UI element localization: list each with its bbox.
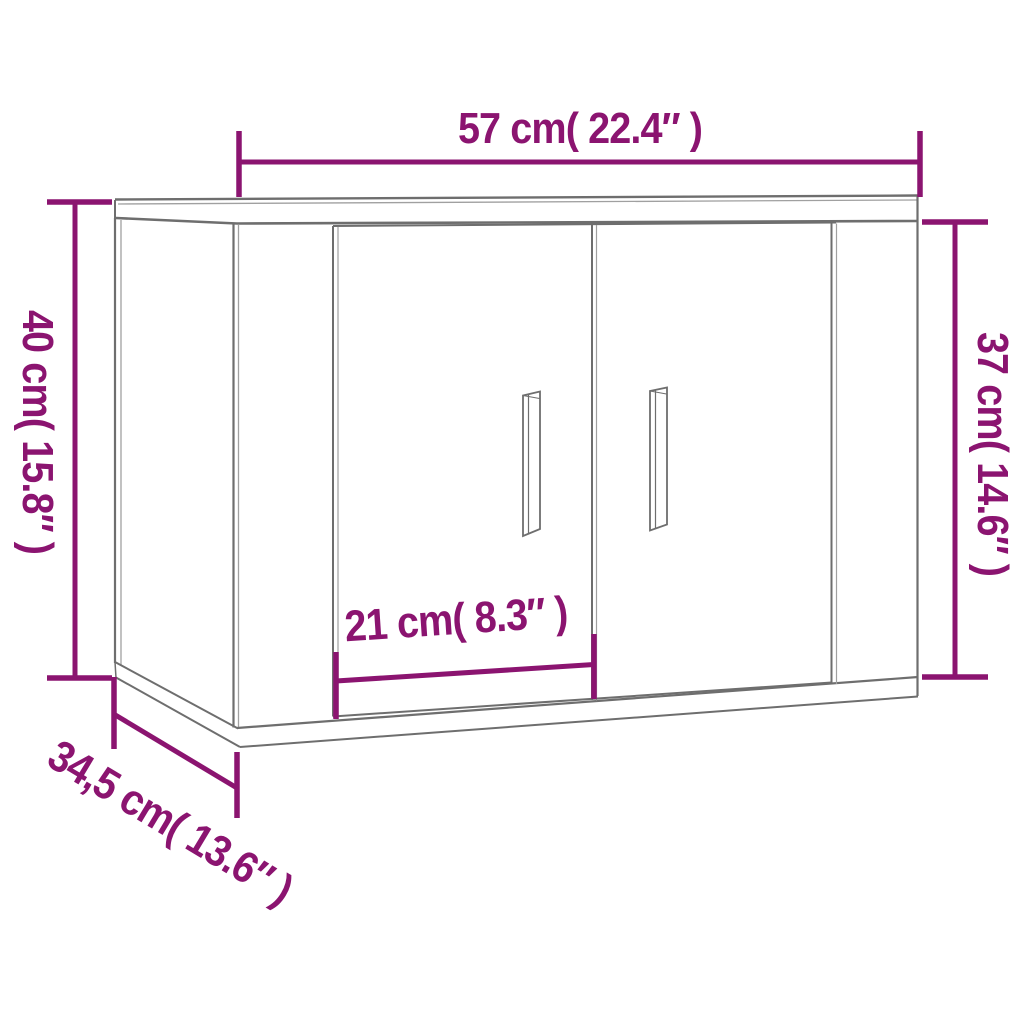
width-dimension-label: 57 cm( 22.4″ ) — [346, 105, 814, 153]
cabinet-left-side — [115, 218, 240, 747]
height-right-dimension-label: 37 cm( 14.6″ ) — [968, 220, 1016, 688]
dimension-diagram: 57 cm( 22.4″ ) 40 cm( 15.8″ ) 37 cm( 14.… — [0, 0, 1024, 1024]
right-door — [832, 224, 837, 685]
cabinet-line-drawing — [0, 0, 1024, 1024]
height-left-dimension-label: 40 cm( 15.8″ ) — [13, 198, 61, 666]
cabinet-outline — [115, 196, 918, 748]
cabinet-top-panel — [115, 196, 918, 224]
door-bottom-edge — [333, 683, 832, 717]
left-door-handle — [523, 392, 540, 537]
right-door-handle — [650, 388, 667, 531]
